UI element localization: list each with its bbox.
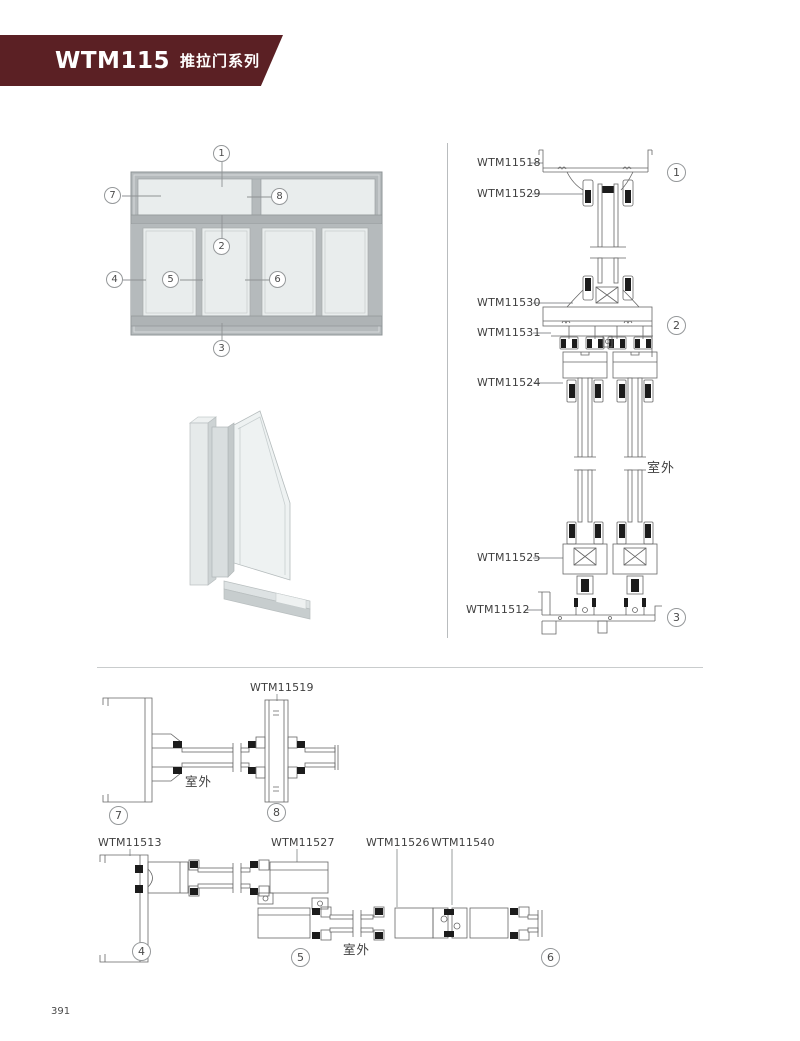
callout-number: 1 xyxy=(218,148,224,159)
series-name: 推拉门系列 xyxy=(180,50,260,71)
callout-number: 4 xyxy=(138,945,145,958)
callout-number: 2 xyxy=(218,241,224,252)
iso-profile-3d-render xyxy=(180,395,330,630)
outdoor-label-bottom: 室外 xyxy=(343,939,370,958)
transom-section-drawing xyxy=(95,675,345,825)
elevation-callout-8: 8 xyxy=(271,188,288,205)
elevation-callout-6: 6 xyxy=(269,271,286,288)
vertical-divider-line xyxy=(447,143,448,638)
part-label-wtm11524: WTM11524 xyxy=(477,376,541,389)
callout-number: 3 xyxy=(218,343,224,354)
catalog-page: WTM115 推拉门系列 1 2 3 4 5 6 7 8 xyxy=(0,0,800,1041)
part-label-wtm11531: WTM11531 xyxy=(477,326,541,339)
horizontal-divider-line xyxy=(97,667,703,668)
series-code: WTM115 xyxy=(55,48,170,74)
elevation-callout-7: 7 xyxy=(104,187,121,204)
part-label-wtm11527: WTM11527 xyxy=(271,836,335,849)
callout-number: 7 xyxy=(109,190,115,201)
part-label-wtm11540: WTM11540 xyxy=(431,836,495,849)
outdoor-label-transom: 室外 xyxy=(185,771,212,790)
elevation-callout-4: 4 xyxy=(106,271,123,288)
callout-number: 8 xyxy=(276,191,282,202)
callout-number: 5 xyxy=(297,951,304,964)
callout-number: 7 xyxy=(115,809,122,822)
section-callout-2: 2 xyxy=(667,316,686,335)
callout-number: 6 xyxy=(547,951,554,964)
elevation-callout-3: 3 xyxy=(213,340,230,357)
part-label-wtm11512: WTM11512 xyxy=(466,603,530,616)
elevation-callout-5: 5 xyxy=(162,271,179,288)
callout-number: 8 xyxy=(273,806,280,819)
section-callout-7: 7 xyxy=(109,806,128,825)
callout-number: 5 xyxy=(167,274,173,285)
section-callout-5: 5 xyxy=(291,948,310,967)
callout-number: 2 xyxy=(673,319,680,332)
callout-number: 4 xyxy=(111,274,117,285)
elevation-drawing xyxy=(105,140,395,360)
section-callout-1: 1 xyxy=(667,163,686,182)
page-number: 391 xyxy=(51,1006,70,1017)
section-callout-3: 3 xyxy=(667,608,686,627)
elevation-callout-1: 1 xyxy=(213,145,230,162)
callout-number: 1 xyxy=(673,166,680,179)
part-label-wtm11519: WTM11519 xyxy=(250,681,314,694)
section-callout-6: 6 xyxy=(541,948,560,967)
elevation-callout-2: 2 xyxy=(213,238,230,255)
callout-number: 3 xyxy=(673,611,680,624)
header-banner: WTM115 推拉门系列 xyxy=(0,35,283,86)
section-callout-4: 4 xyxy=(132,942,151,961)
part-label-wtm11518: WTM11518 xyxy=(477,156,541,169)
part-label-wtm11529: WTM11529 xyxy=(477,187,541,200)
part-label-wtm11525: WTM11525 xyxy=(477,551,541,564)
callout-number: 6 xyxy=(274,274,280,285)
vertical-section-drawing xyxy=(455,140,705,650)
section-callout-8: 8 xyxy=(267,803,286,822)
part-label-wtm11526: WTM11526 xyxy=(366,836,430,849)
bottom-section-drawing xyxy=(90,835,560,975)
part-label-wtm11513: WTM11513 xyxy=(98,836,162,849)
outdoor-label-vertical: 室外 xyxy=(647,457,675,476)
part-label-wtm11530: WTM11530 xyxy=(477,296,541,309)
